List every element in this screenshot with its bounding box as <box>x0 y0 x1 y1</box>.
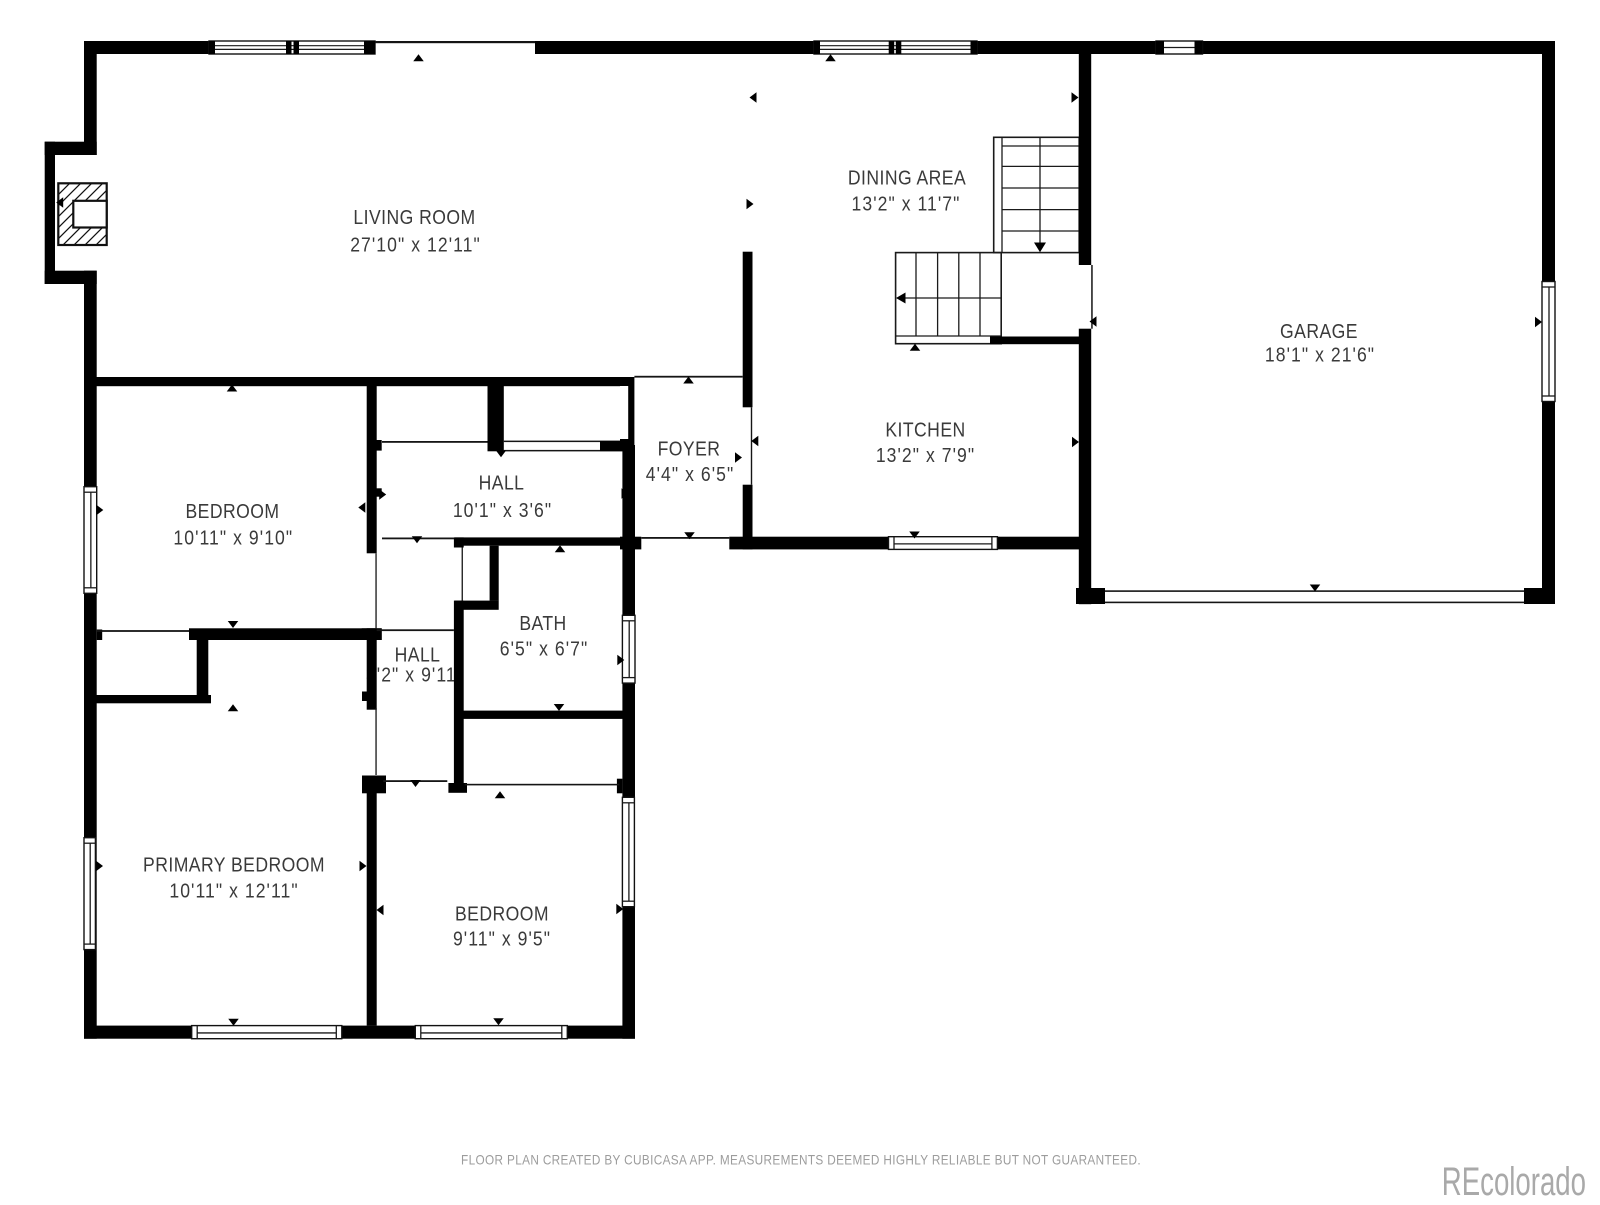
svg-text:HALL: HALL <box>395 643 441 665</box>
svg-text:PRIMARY BEDROOM: PRIMARY BEDROOM <box>143 853 325 875</box>
svg-text:BEDROOM: BEDROOM <box>186 500 280 522</box>
svg-text:KITCHEN: KITCHEN <box>885 418 965 440</box>
svg-text:9'11" x 9'5": 9'11" x 9'5" <box>453 927 551 949</box>
svg-text:6'5" x 6'7": 6'5" x 6'7" <box>500 637 589 659</box>
svg-text:10'11" x 12'11": 10'11" x 12'11" <box>169 879 298 901</box>
svg-text:4'4" x 6'5": 4'4" x 6'5" <box>646 463 735 485</box>
svg-text:BATH: BATH <box>519 612 566 634</box>
svg-text:10'1" x 3'6": 10'1" x 3'6" <box>453 499 552 521</box>
svg-text:FOYER: FOYER <box>658 437 721 459</box>
svg-text:18'1" x 21'6": 18'1" x 21'6" <box>1265 343 1375 365</box>
svg-text:FLOOR PLAN CREATED BY CUBICASA: FLOOR PLAN CREATED BY CUBICASA APP. MEAS… <box>461 1153 1141 1168</box>
svg-text:HALL: HALL <box>479 471 525 493</box>
svg-text:13'2" x 11'7": 13'2" x 11'7" <box>852 192 961 214</box>
svg-text:BEDROOM: BEDROOM <box>455 902 549 924</box>
svg-text:GARAGE: GARAGE <box>1280 320 1358 342</box>
svg-text:DINING AREA: DINING AREA <box>848 166 966 188</box>
svg-text:LIVING ROOM: LIVING ROOM <box>353 206 475 228</box>
svg-text:10'11" x 9'10": 10'11" x 9'10" <box>173 526 293 548</box>
svg-text:REcolorado: REcolorado <box>1442 1160 1586 1200</box>
svg-text:13'2" x 7'9": 13'2" x 7'9" <box>876 444 975 466</box>
svg-text:3'2" x 9'11": 3'2" x 9'11" <box>366 663 464 685</box>
svg-text:27'10" x 12'11": 27'10" x 12'11" <box>350 233 481 255</box>
